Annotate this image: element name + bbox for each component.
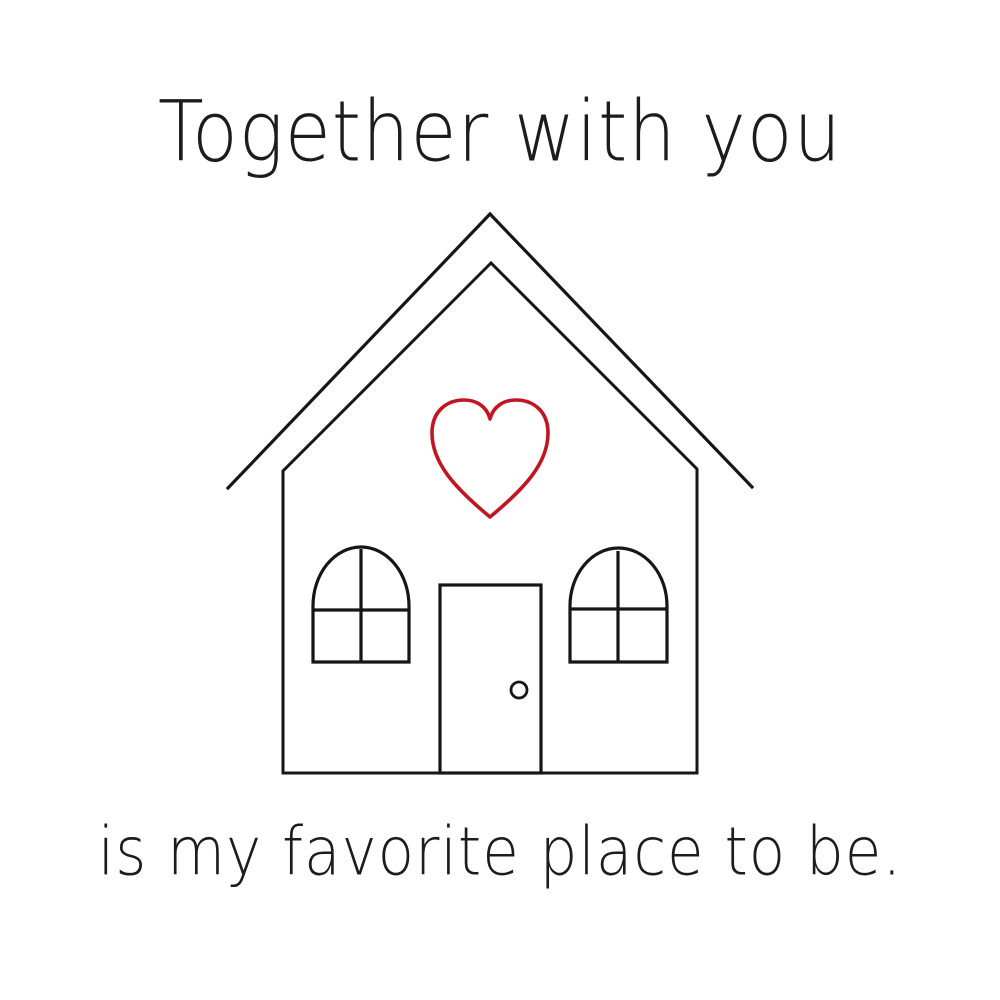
doorknob-icon (511, 682, 527, 698)
door (440, 585, 541, 773)
caption-text: is my favorite place to be. (20, 812, 980, 891)
greeting-card: Together with you is my favorite place t… (0, 0, 1000, 1000)
heart-icon (432, 400, 548, 517)
